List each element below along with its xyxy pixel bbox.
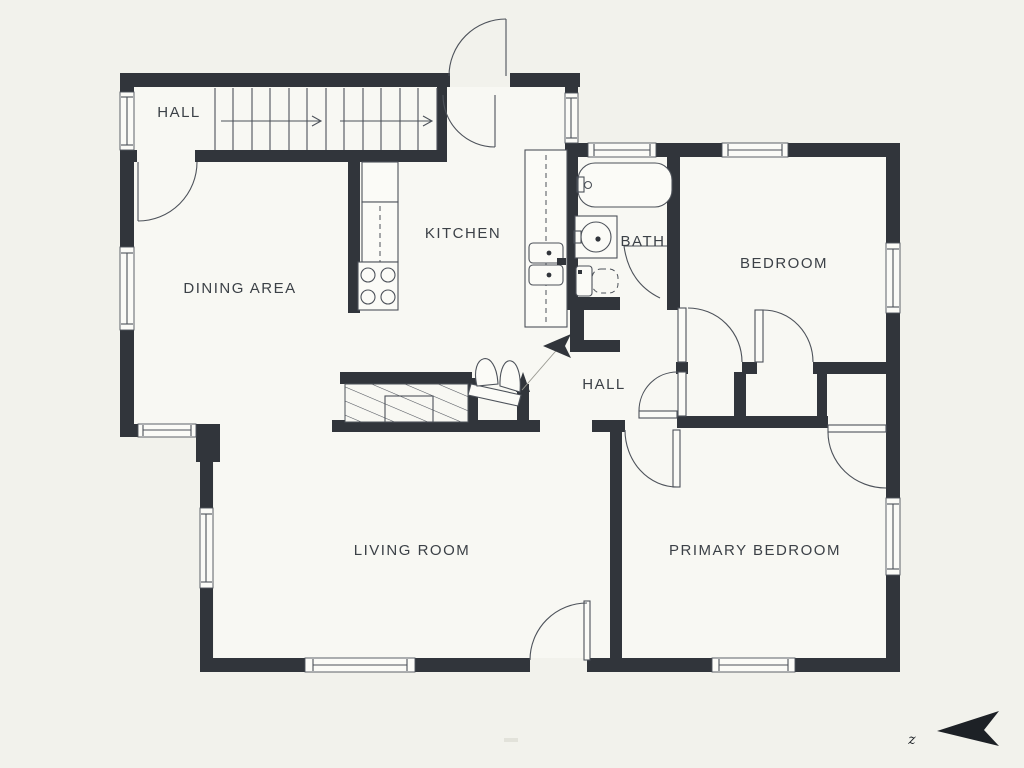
kitchen-counter-right: [525, 150, 567, 327]
room-label-kitchen: KITCHEN: [425, 225, 501, 242]
room-label-hall: HALL: [582, 376, 626, 393]
window-bedroom-right: [886, 243, 900, 313]
room-label-dining: DINING AREA: [183, 280, 296, 297]
floor-plan: HALL DINING AREA KITCHEN BATH BEDROOM HA…: [0, 0, 1024, 768]
north-label: z: [907, 732, 916, 748]
room-label-living: LIVING ROOM: [354, 542, 471, 559]
window-bath-top: [588, 143, 656, 157]
room-label-primary: PRIMARY BEDROOM: [669, 542, 841, 559]
fireplace: [345, 384, 468, 422]
stove: [358, 262, 398, 310]
vanity-sink: [574, 216, 617, 258]
room-label-bath: BATH: [621, 233, 666, 250]
window-vestibule-right: [565, 93, 578, 143]
window-dining-left: [120, 247, 134, 330]
room-label-hall-upper: HALL: [157, 104, 201, 121]
window-primary-right: [886, 498, 900, 575]
north-arrow-icon: z: [907, 711, 999, 748]
window-living-left: [200, 508, 213, 588]
window-hall-left: [120, 92, 134, 150]
window-bedroom-top: [722, 143, 788, 157]
bathtub: [577, 163, 672, 207]
floor-plan-canvas: HALL DINING AREA KITCHEN BATH BEDROOM HA…: [0, 0, 1024, 768]
window-primary-bottom: [712, 658, 795, 672]
watermark-smudge: [504, 738, 518, 742]
window-living-bottom: [305, 658, 415, 672]
refrigerator: [362, 162, 398, 202]
window-dining-bottom: [138, 424, 196, 437]
room-label-bedroom: BEDROOM: [740, 255, 828, 272]
